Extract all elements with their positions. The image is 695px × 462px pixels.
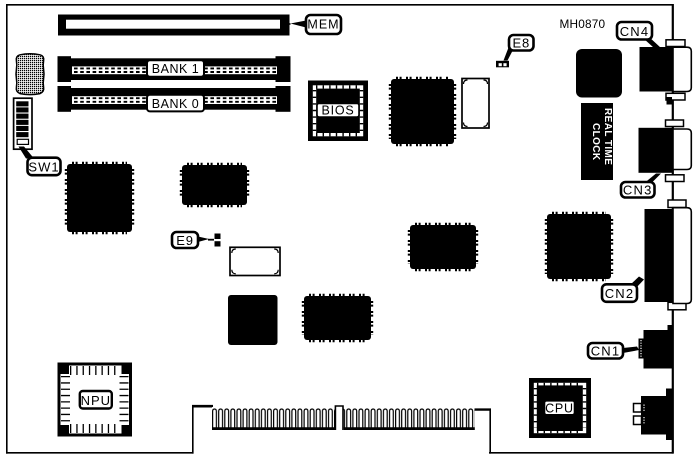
svg-text:E8: E8: [513, 36, 531, 51]
svg-text:CN1: CN1: [591, 344, 621, 359]
svg-text:MEM: MEM: [307, 18, 339, 32]
svg-text:CN3: CN3: [623, 183, 653, 198]
svg-text:CN4: CN4: [620, 24, 650, 39]
svg-text:BIOS: BIOS: [321, 103, 354, 117]
svg-text:REAL TIME: REAL TIME: [602, 108, 613, 165]
svg-text:BANK 0: BANK 0: [152, 97, 199, 111]
svg-text:MH0870: MH0870: [560, 17, 606, 31]
svg-text:NPU: NPU: [81, 393, 111, 408]
svg-text:E9: E9: [176, 233, 194, 248]
svg-text:CLOCK: CLOCK: [590, 123, 601, 161]
svg-text:CN2: CN2: [605, 286, 635, 301]
svg-text:BANK 1: BANK 1: [152, 62, 199, 76]
svg-text:SW1: SW1: [28, 160, 59, 175]
svg-text:CPU: CPU: [545, 401, 574, 415]
